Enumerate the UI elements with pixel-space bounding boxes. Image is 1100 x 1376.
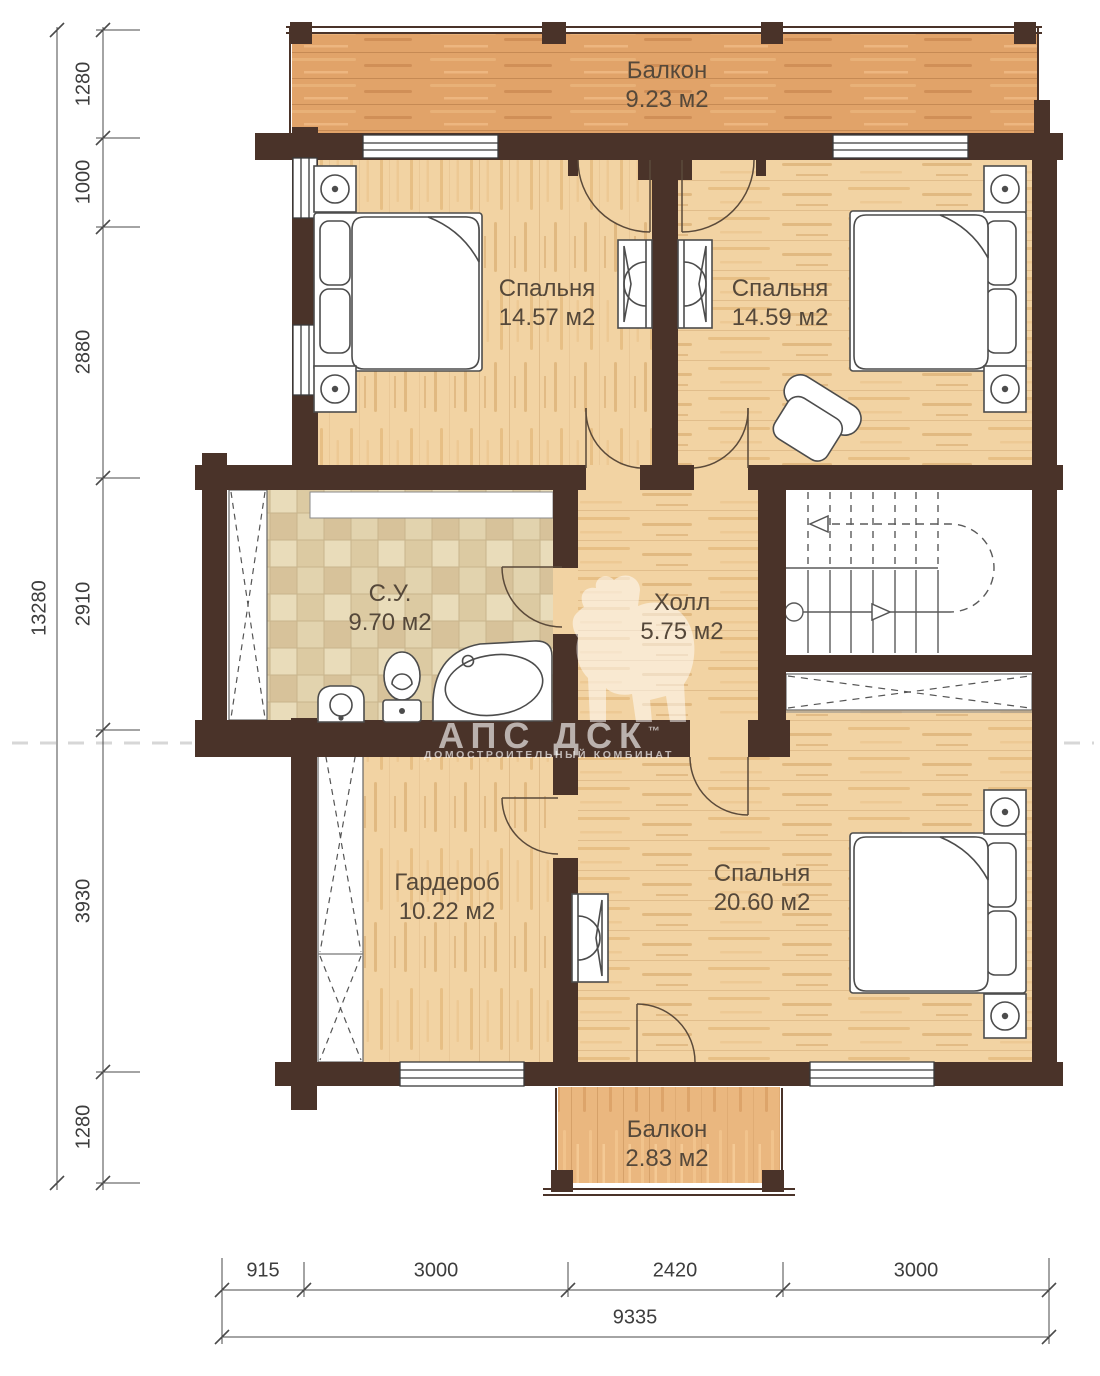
room-label-hall: Холл 5.75 м2 xyxy=(640,588,723,646)
room-name: С.У. xyxy=(348,579,431,608)
room-area: 14.57 м2 xyxy=(499,303,596,332)
nightstand-icon xyxy=(984,166,1026,212)
room-name: Балкон xyxy=(625,56,708,85)
window-top-right xyxy=(833,135,968,158)
wall-center-bedrooms xyxy=(652,133,678,470)
room-name: Спальня xyxy=(714,859,811,888)
dim-bottom-seg-4: 3000 xyxy=(894,1260,939,1283)
staircase xyxy=(783,490,1032,655)
window-top-left xyxy=(363,135,498,158)
room-name: Холл xyxy=(640,588,723,617)
room-name: Спальня xyxy=(499,274,596,303)
dresser-mirror-icon xyxy=(572,894,608,982)
dim-left-seg-3: 2880 xyxy=(73,330,96,375)
nightstand-icon xyxy=(314,366,356,412)
floor-plan-drawing xyxy=(0,0,1100,1376)
dresser-mirror-icon xyxy=(678,240,712,328)
room-area: 20.60 м2 xyxy=(714,888,811,917)
room-area: 9.70 м2 xyxy=(348,608,431,637)
room-label-balcony-top: Балкон 9.23 м2 xyxy=(625,56,708,114)
dim-left-total: 13280 xyxy=(29,580,52,636)
room-label-wardrobe: Гардероб 10.22 м2 xyxy=(394,868,500,926)
room-area: 10.22 м2 xyxy=(394,897,500,926)
room-label-bathroom: С.У. 9.70 м2 xyxy=(348,579,431,637)
bathroom-shelf xyxy=(310,492,553,518)
room-label-bedroom-1: Спальня 14.57 м2 xyxy=(499,274,596,332)
bed-icon-bedroom-3 xyxy=(850,833,1026,993)
dresser-mirror-icon xyxy=(618,240,652,328)
watermark-subtitle: ДОМОСТРОИТЕЛЬНЫЙ КОМБИНАТ xyxy=(424,749,674,761)
dim-left-seg-5: 3930 xyxy=(73,879,96,924)
room-area: 5.75 м2 xyxy=(640,617,723,646)
nightstand-icon xyxy=(314,166,356,212)
nightstand-icon xyxy=(984,994,1026,1038)
room-name: Гардероб xyxy=(394,868,500,897)
nightstand-icon xyxy=(984,366,1026,412)
window-bottom-left xyxy=(400,1062,524,1086)
bed-icon-bedroom-2 xyxy=(850,211,1026,371)
watermark-tm: ™ xyxy=(648,724,660,738)
stair-walkline-start xyxy=(785,603,803,621)
dim-left-seg-6: 1280 xyxy=(73,1105,96,1150)
room-area: 14.59 м2 xyxy=(732,303,829,332)
wall-bottom xyxy=(275,1062,1063,1086)
nightstand-icon xyxy=(984,790,1026,834)
room-area: 2.83 м2 xyxy=(625,1144,708,1173)
wall-hall-stairs xyxy=(758,490,786,757)
dim-bottom-seg-1: 915 xyxy=(246,1260,279,1283)
bed-icon-bedroom-1 xyxy=(314,213,482,371)
wall-right xyxy=(1032,133,1057,1086)
sink-icon xyxy=(318,686,364,722)
room-area: 9.23 м2 xyxy=(625,85,708,114)
toilet-icon xyxy=(383,652,421,722)
closet-wardrobe xyxy=(318,722,363,1062)
wall-bathroom-left xyxy=(202,453,227,757)
dim-left-seg-2: 1000 xyxy=(73,160,96,205)
room-label-balcony-bottom: Балкон 2.83 м2 xyxy=(625,1115,708,1173)
dim-bottom-total: 9335 xyxy=(613,1307,658,1330)
room-name: Спальня xyxy=(732,274,829,303)
room-label-bedroom-2: Спальня 14.59 м2 xyxy=(732,274,829,332)
dim-bottom-seg-3: 2420 xyxy=(653,1260,698,1283)
dim-left-seg-4: 2910 xyxy=(73,582,96,627)
window-bottom-right xyxy=(810,1062,934,1086)
dim-left-seg-1: 1280 xyxy=(73,62,96,107)
room-name: Балкон xyxy=(625,1115,708,1144)
floor-plan-page: Балкон 9.23 м2 Спальня 14.57 м2 Спальня … xyxy=(0,0,1100,1376)
wall-left-lower xyxy=(291,718,317,1110)
room-label-bedroom-3: Спальня 20.60 м2 xyxy=(714,859,811,917)
dim-bottom-seg-2: 3000 xyxy=(414,1260,459,1283)
